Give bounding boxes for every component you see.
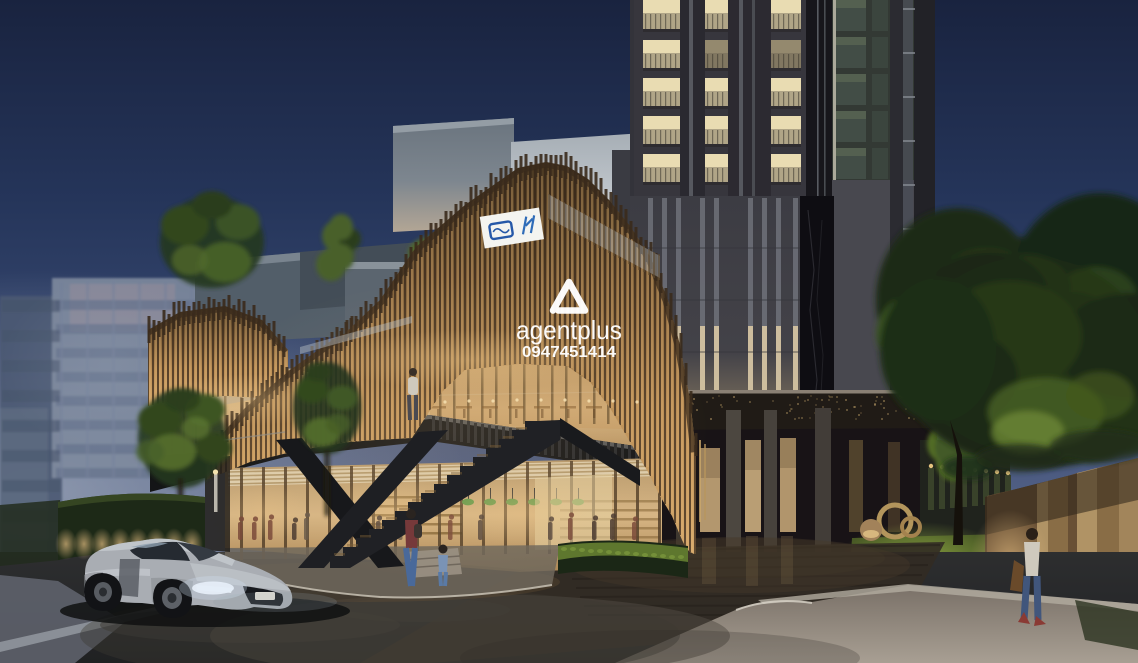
svg-text:0947451414: 0947451414 <box>522 344 616 361</box>
svg-text:agentplus: agentplus <box>516 315 622 345</box>
